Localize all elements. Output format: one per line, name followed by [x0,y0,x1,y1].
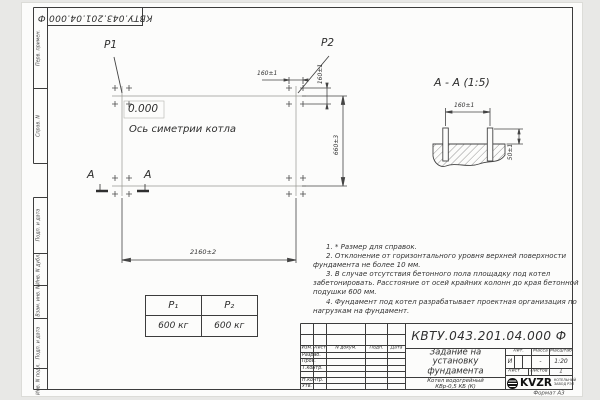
section-cut-marks [96,184,149,191]
tb-sheets-value: 1 [559,369,562,374]
tb-row-prov: Пров. [302,360,316,365]
corner-designation: КВТУ.043.201.04.000 Ф [38,12,153,21]
tb-scale-value: 1:20 [554,359,567,365]
load-point-p1-label: P1 [104,40,117,51]
anchor-bolt-left [443,128,449,161]
load-table: P₁ P₂ 600 кг 600 кг [145,295,258,337]
load-table-header-p2: P₂ [202,296,258,316]
load-table-header-p1: P₁ [146,296,202,316]
tb-header-scale: Масштаб [550,350,572,355]
tb-row-tkontr: Т.контр. [302,367,323,372]
tb-row-razrab: Разраб. [302,354,321,359]
margin-field-invpodl: Инв. N подл. [38,363,43,395]
factory-logo: KVZR КОТЕЛЬНЫЙ ЗАВОД РЭП [507,377,576,389]
note-3: 3. В случае отсутствия бетонного пола пл… [313,270,579,297]
margin-field-perv: Перв. примен. [38,30,43,66]
technical-notes: 1. * Размер для справок. 2. Отклонение о… [313,243,579,316]
elevation-label: 0.000 [128,104,158,115]
tb-row-utv: Утв. [302,385,312,390]
tb-lit-value: И [508,359,513,365]
logo-caption: КОТЕЛЬНЫЙ ЗАВОД РЭП [554,379,576,387]
tb-header-izm: Изм. [302,347,313,352]
margin-field-podp2: Подп. и дата [38,327,43,360]
anchor-bolt-crosses [112,85,306,197]
dim-foundation-height: 660±3 [334,135,340,155]
section-view-title: А - А (1:5) [434,77,490,88]
load-table-value-p2: 600 кг [202,316,258,336]
format-label: Формат А3 [533,391,564,397]
dim-bolt-spacing-v: 160±1 [318,64,324,84]
margin-field-sprav: Справ. N [38,115,43,137]
tb-header-lit: Лит. [513,350,524,355]
section-dim-span: 160±1 [454,103,474,109]
title-block-designation: КВТУ.043.201.04.000 Ф [411,330,566,342]
scanned-engineering-drawing: { "colors": { "ink": "#3a3a3a", "paper":… [0,0,600,400]
note-1: 1. * Размер для справок. [313,243,579,252]
section-view-concrete-block [433,128,505,166]
title-block-document-title: Задание на установку фундамента [427,348,483,377]
logo-name: KVZR [520,377,552,389]
tb-header-sheet: Лист [508,370,520,375]
note-2: 2. Отклонение от горизонтального уровня … [313,252,579,270]
note-4: 4. Фундамент под котел разрабатывает про… [313,298,579,316]
dim-foundation-width: 2160±2 [190,249,216,256]
logo-coil-icon [507,378,518,389]
leader-lines [114,56,329,93]
section-view-dimensions [446,108,524,144]
anchor-bolt-right [487,128,493,161]
tb-header-ndoc: N докум. [335,347,356,352]
margin-field-vzam: Взам. инв. N [38,285,43,316]
load-point-p2-label: P2 [321,38,334,49]
margin-field-invdubl: Инв. N дубл. [38,253,43,284]
boiler-axis-label: Ось симетрии котла [129,125,236,135]
load-table-value-p1: 600 кг [146,316,202,336]
section-dim-protrusion: 50±1 [508,144,514,160]
tb-header-massa: Масса [533,350,548,355]
margin-field-podp1: Подп. и дата [38,209,43,242]
tb-header-list: Лист [314,347,326,352]
tb-header-sheets: Листов [530,370,547,375]
title-block-product-name: Котел водогрейный КВр-0,5 КБ (К) [427,377,484,389]
tb-mass-value: - [539,359,541,365]
tb-header-podp: Подп. [370,347,384,352]
tb-row-nkontr: Н.контр. [302,379,323,384]
dim-bolt-spacing-h: 160±1 [257,71,277,77]
section-letter-left: А [87,169,95,180]
tb-header-data: Дата [391,347,403,352]
section-letter-right: А [144,169,152,180]
